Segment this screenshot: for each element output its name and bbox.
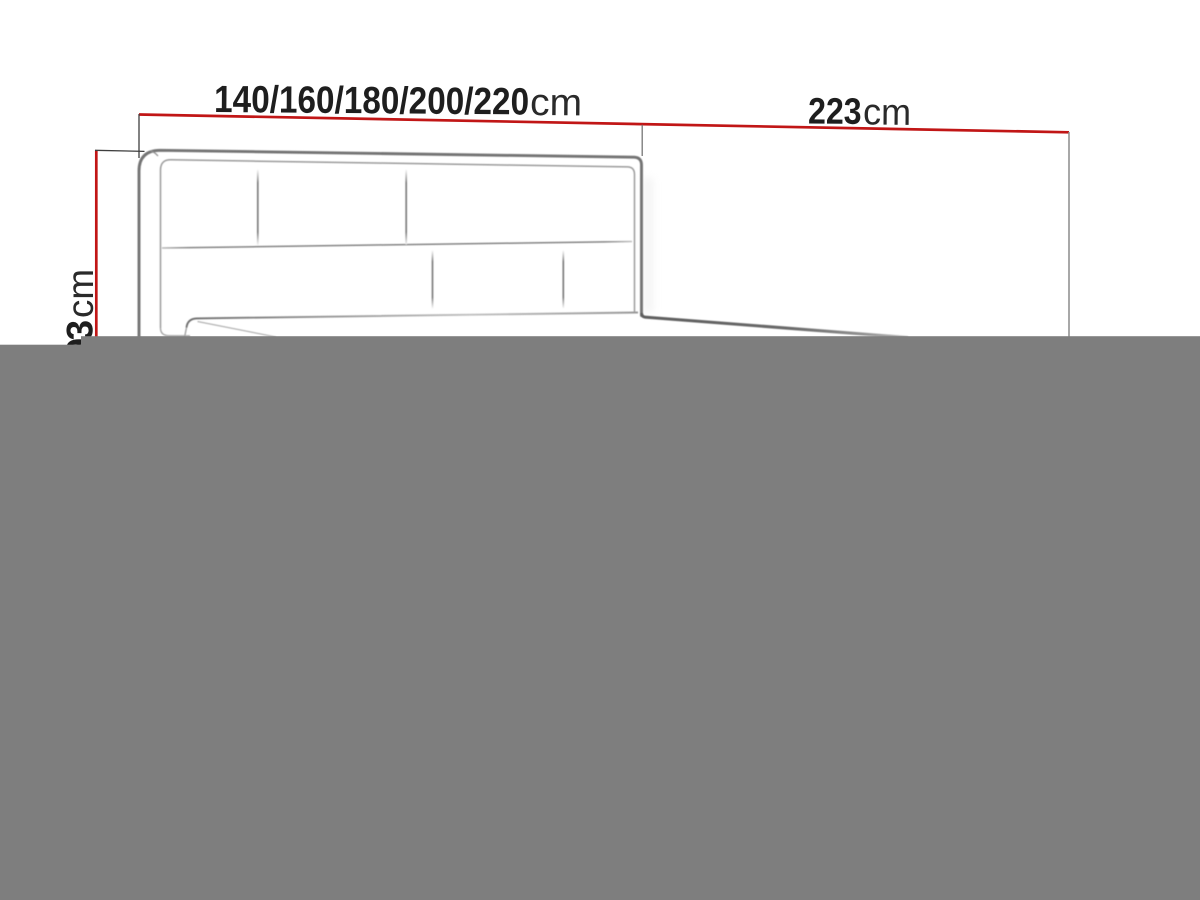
svg-text:cm: cm (863, 91, 911, 132)
svg-text:cm: cm (60, 269, 101, 318)
svg-text:140/160/180/200/220: 140/160/180/200/220 (214, 79, 529, 123)
svg-text:cm: cm (530, 82, 582, 124)
svg-text:223: 223 (808, 91, 862, 132)
